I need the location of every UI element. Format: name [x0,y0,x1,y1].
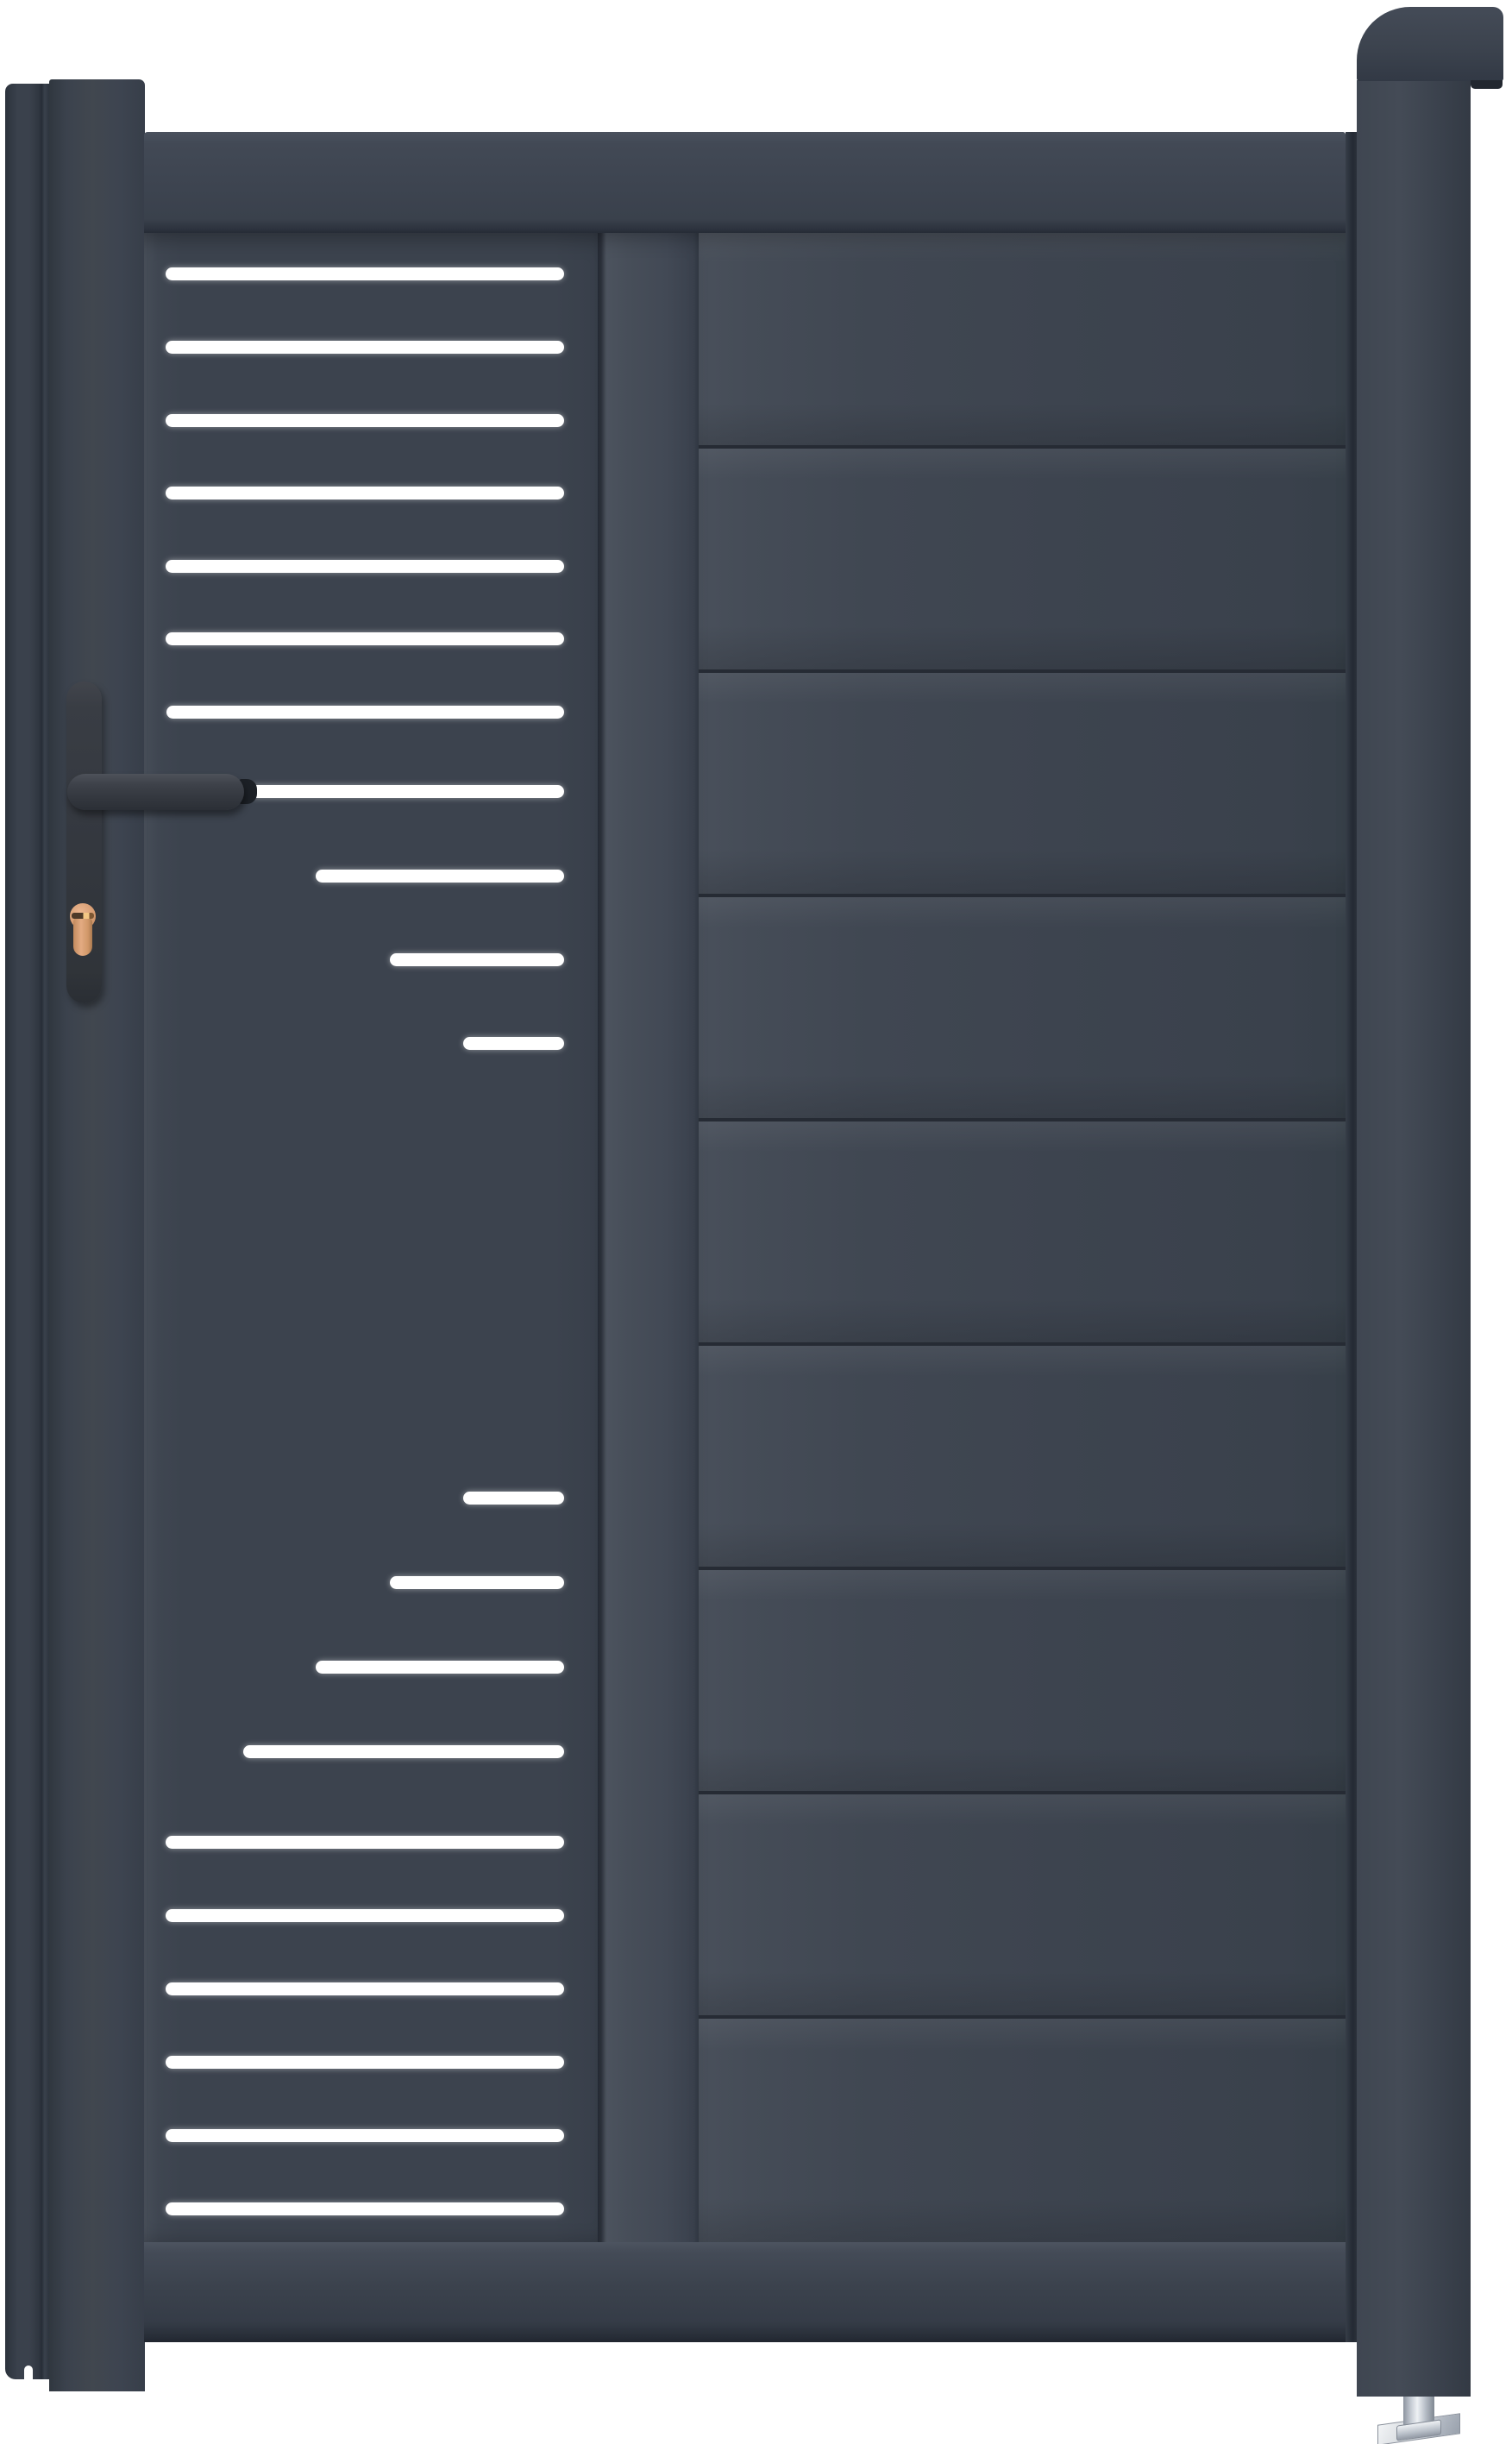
laser-cut-slot [316,870,564,883]
laser-cut-slot [243,1745,564,1758]
laser-cut-slot [248,785,564,798]
laser-cut-slot [166,267,564,280]
laser-cut-slot [166,1909,564,1922]
laser-cut-slot [166,487,564,499]
gate-product-photo [0,0,1512,2444]
laser-cut-slot [166,2056,564,2069]
laser-cut-slot [390,1576,564,1589]
handle-lever [67,774,244,810]
lock-keyhole-slot [72,913,94,919]
laser-cut-slot [463,1037,564,1050]
laser-cut-slot [166,560,564,573]
laser-cut-slot [166,632,564,645]
laser-cut-slot [166,1982,564,1995]
laser-cut-slot [316,1661,564,1674]
lock-cylinder-body [73,917,92,956]
laser-cut-slot [166,1836,564,1849]
laser-cut-slot [166,706,564,719]
slot-layer [0,0,1512,2444]
laser-cut-slot [166,2202,564,2215]
laser-cut-slot [463,1492,564,1505]
laser-cut-slot [166,414,564,427]
laser-cut-slot [390,953,564,966]
laser-cut-slot [166,2129,564,2142]
laser-cut-slot [166,341,564,354]
